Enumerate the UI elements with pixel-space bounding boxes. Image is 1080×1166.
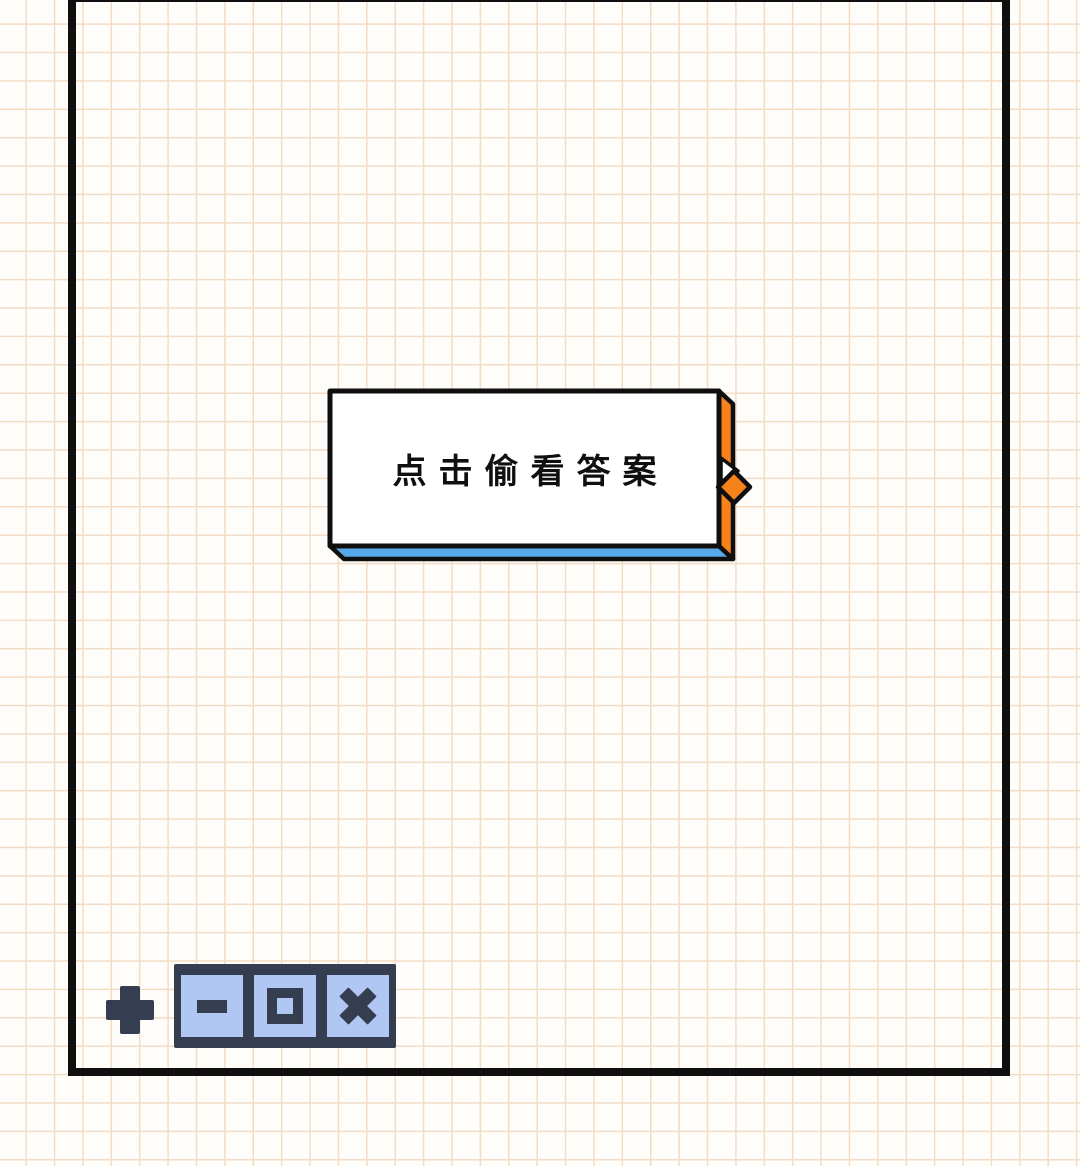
maximize-button[interactable] <box>254 975 316 1037</box>
window-controls-bar <box>174 964 396 1048</box>
square-icon <box>267 988 303 1024</box>
minimize-button[interactable] <box>181 975 243 1037</box>
close-button[interactable] <box>327 975 389 1037</box>
x-icon <box>338 986 378 1026</box>
plus-icon[interactable] <box>106 986 154 1034</box>
peek-answer-button[interactable]: 点击偷看答案 <box>318 384 762 574</box>
plus-icon-horizontal-bar <box>106 1000 154 1020</box>
minus-icon <box>197 1000 227 1013</box>
peek-answer-label: 点击偷看答案 <box>330 391 719 546</box>
